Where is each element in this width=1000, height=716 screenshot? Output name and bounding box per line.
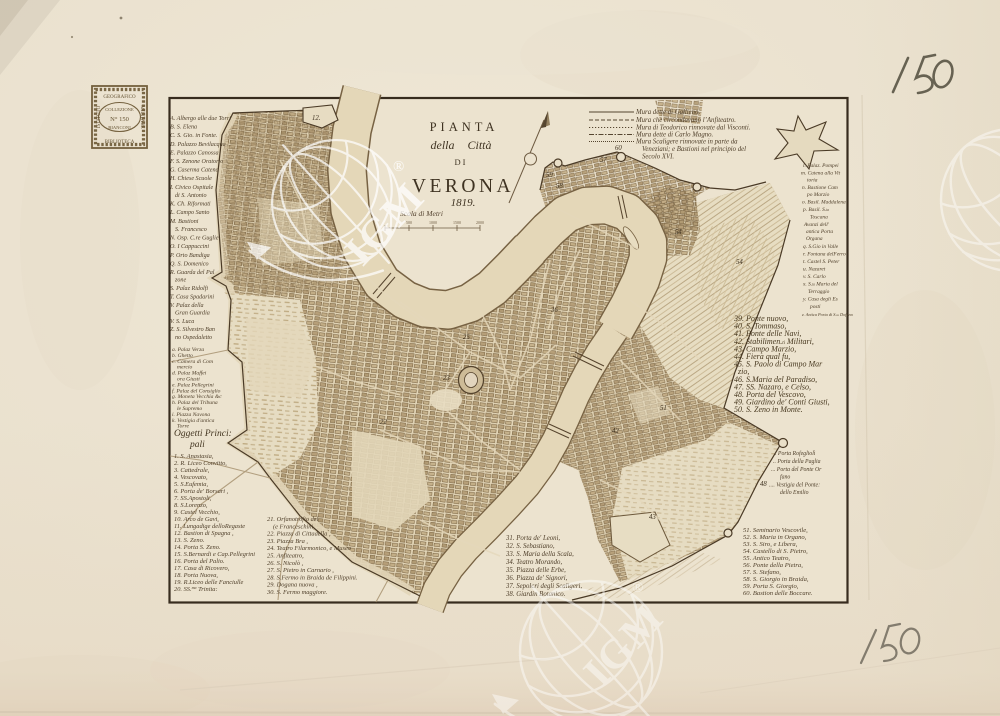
- svg-text:7. SS.Apostoli,: 7. SS.Apostoli,: [174, 495, 212, 502]
- svg-text:20. SS.ma Trinita:: 20. SS.ma Trinita:: [174, 585, 218, 593]
- svg-text:q. S.Gio in Valle: q. S.Gio in Valle: [803, 244, 839, 250]
- svg-text:25. Anfiteatro,: 25. Anfiteatro,: [267, 553, 304, 560]
- svg-text:Oggetti Princi:: Oggetti Princi:: [174, 429, 232, 439]
- svg-text:I. Civico Ospitale: I. Civico Ospitale: [169, 185, 213, 191]
- svg-text:2. R. Liceo Convitto,: 2. R. Liceo Convitto,: [174, 460, 227, 467]
- svg-text:51: 51: [660, 405, 667, 412]
- svg-text:A. Albergo alle due Torri: A. Albergo alle due Torri: [169, 116, 231, 122]
- svg-text:13. S. Zeno.: 13. S. Zeno.: [174, 537, 205, 544]
- svg-text:u. Nazaret: u. Nazaret: [803, 267, 826, 273]
- svg-text:25: 25: [463, 334, 470, 341]
- svg-text:4. Vescovato,: 4. Vescovato,: [174, 474, 208, 481]
- svg-text:zone: zone: [174, 278, 186, 284]
- svg-text:30. S. Fermo maggiore.: 30. S. Fermo maggiore.: [266, 589, 328, 596]
- svg-text:E. Palazzo Canossa: E. Palazzo Canossa: [169, 150, 219, 156]
- svg-text:. Porta Rofegliolì: . Porta Rofegliolì: [775, 450, 816, 457]
- svg-text:22. Piazza di Cittadella ,: 22. Piazza di Cittadella ,: [267, 531, 331, 538]
- svg-text:Q. S. Domenico: Q. S. Domenico: [170, 261, 209, 267]
- svg-text:N. Osp. C.re Guglie: N. Osp. C.re Guglie: [169, 236, 219, 242]
- svg-text:34. Teatro Morando,: 34. Teatro Morando,: [505, 559, 562, 566]
- svg-text:29. Dogana nuova ,: 29. Dogana nuova ,: [267, 582, 318, 589]
- svg-text:53. S. Siro, e Libera,: 53. S. Siro, e Libera,: [743, 541, 798, 548]
- svg-text:Toscana: Toscana: [810, 215, 828, 221]
- svg-text:posti: posti: [809, 304, 821, 310]
- svg-text:59. Porta S. Giorgio,: 59. Porta S. Giorgio,: [743, 583, 799, 590]
- svg-text:27. S. Pietro in Carnario ,: 27. S. Pietro in Carnario ,: [267, 567, 334, 574]
- svg-text:O. I Cappuccini: O. I Cappuccini: [170, 244, 209, 250]
- svg-text:Veneziani; e Bastioni nel prin: Veneziani; e Bastioni nel principio del: [642, 146, 746, 153]
- svg-text:Mura di Teodorico rinnovate da: Mura di Teodorico rinnovate dal Visconti…: [635, 125, 751, 132]
- svg-text:1500: 1500: [453, 220, 461, 225]
- svg-text:60. Bastion delle Boccare.: 60. Bastion delle Boccare.: [743, 590, 813, 597]
- svg-text:l. Palaz. Pompei: l. Palaz. Pompei: [803, 163, 839, 169]
- svg-text:L. Campo Santo: L. Campo Santo: [169, 210, 209, 216]
- svg-text:8. S.Lorenzo,: 8. S.Lorenzo,: [174, 502, 208, 509]
- svg-text:r. Fontana delFerro: r. Fontana delFerro: [803, 252, 846, 258]
- svg-text:V. S. Luca: V. S. Luca: [170, 319, 194, 325]
- svg-text:23. Piazza Bra ,: 23. Piazza Bra ,: [267, 538, 308, 545]
- svg-text:D. Palazzo Bevilacqua: D. Palazzo Bevilacqua: [169, 142, 226, 148]
- svg-text:COLLEZIONE: COLLEZIONE: [105, 107, 134, 112]
- svg-text:Avanzi dell': Avanzi dell': [803, 222, 830, 228]
- svg-text:t. Castel S. Peter: t. Castel S. Peter: [803, 259, 840, 265]
- svg-text:z. Antica Porta di S.ta Dofano: z. Antica Porta di S.ta Dofano: [801, 312, 854, 317]
- svg-text:S. Palaz Ridolfi: S. Palaz Ridolfi: [170, 285, 208, 292]
- svg-text:54. Castello di S. Pietro,: 54. Castello di S. Pietro,: [743, 548, 808, 555]
- svg-text:18. Porta Nuova,: 18. Porta Nuova,: [174, 572, 218, 579]
- svg-text:57. S. Stefano,: 57. S. Stefano,: [743, 569, 781, 576]
- svg-text:M. Bastioni: M. Bastioni: [169, 219, 199, 225]
- svg-text:pali: pali: [189, 440, 205, 450]
- svg-text:o. Basil. Maddalena: o. Basil. Maddalena: [802, 200, 846, 206]
- svg-text:51. Seminario Vescovile,: 51. Seminario Vescovile,: [743, 527, 808, 534]
- svg-text:2000: 2000: [476, 220, 484, 225]
- svg-text:R. Guarda del Pal: R. Guarda del Pal: [169, 270, 215, 276]
- svg-text:y. Casa degli Es: y. Casa degli Es: [802, 297, 838, 303]
- svg-text:33. S. Maria della Scala,: 33. S. Maria della Scala,: [505, 551, 574, 558]
- svg-text:43: 43: [649, 514, 656, 521]
- svg-text:... Porta del Ponte Or: ... Porta del Ponte Or: [771, 467, 822, 473]
- svg-text:54: 54: [736, 259, 743, 266]
- svg-text:m. Catena alla Vit: m. Catena alla Vit: [801, 171, 841, 177]
- svg-text:H. Chiese Scuole: H. Chiese Scuole: [169, 176, 212, 182]
- svg-text:52. S. Maria in Organo,: 52. S. Maria in Organo,: [743, 534, 807, 541]
- svg-text:16. Porta del Palio.: 16. Porta del Palio.: [174, 558, 225, 565]
- svg-text:58: 58: [556, 183, 563, 190]
- svg-text:28. S.Fermo in Braida de Filip: 28. S.Fermo in Braida de Filippini.: [267, 574, 358, 581]
- svg-text:v. S. Carlo: v. S. Carlo: [803, 274, 826, 280]
- svg-text:5. S.Eufemia,: 5. S.Eufemia,: [174, 481, 208, 488]
- svg-text:.... Vestigia del Ponte:: .... Vestigia del Ponte:: [769, 483, 820, 489]
- svg-text:24. Teatro Filarmonico, e Muse: 24. Teatro Filarmonico, e Museo: [267, 545, 351, 552]
- svg-text:59: 59: [546, 172, 553, 179]
- svg-text:V. Palaz della: V. Palaz della: [170, 303, 204, 309]
- svg-text:Gran Guardia: Gran Guardia: [175, 311, 210, 317]
- svg-text:50. S. Zeno in Monte.: 50. S. Zeno in Monte.: [734, 405, 803, 414]
- svg-text:12. Bastion di Spagna ,: 12. Bastion di Spagna ,: [174, 530, 234, 537]
- svg-text:48: 48: [760, 481, 767, 488]
- svg-text:Mura Scaligere rinnovate in pa: Mura Scaligere rinnovate in parte da: [635, 139, 738, 146]
- svg-text:C. S. Gio. in Fonte.: C. S. Gio. in Fonte.: [170, 133, 217, 139]
- svg-text:P. Orto Bandiga: P. Orto Bandiga: [169, 253, 210, 259]
- svg-text:di S. Antonio: di S. Antonio: [175, 193, 207, 199]
- svg-text:no Ospedaletto: no Ospedaletto: [175, 335, 212, 341]
- svg-text:G. Caserma Catena: G. Caserma Catena: [170, 168, 219, 174]
- svg-text:54: 54: [675, 229, 682, 236]
- svg-text:22: 22: [380, 419, 387, 426]
- svg-text:n. Bastione Cam: n. Bastione Cam: [802, 185, 838, 191]
- svg-text:antica Porta: antica Porta: [806, 229, 833, 235]
- svg-text:19. R.Liceo delle Fanciulle: 19. R.Liceo delle Fanciulle: [174, 579, 244, 586]
- svg-text:BIANCONI: BIANCONI: [108, 125, 131, 130]
- svg-text:56. Ponte della Pietra,: 56. Ponte della Pietra,: [743, 562, 803, 569]
- svg-text:57: 57: [600, 157, 607, 164]
- svg-text:Secolo XVI.: Secolo XVI.: [642, 154, 674, 161]
- svg-text:Terraggio: Terraggio: [808, 289, 830, 295]
- svg-text:15. S.Bernardi e Cap.Pellegrin: 15. S.Bernardi e Cap.Pellegrini: [174, 551, 255, 558]
- svg-text:12.: 12.: [312, 115, 321, 122]
- svg-text:GEOGRAFICO: GEOGRAFICO: [103, 95, 136, 100]
- svg-text:della Città: della Città: [431, 138, 492, 152]
- svg-text:Mura che circondavano l’Anfite: Mura che circondavano l’Anfiteatro.: [635, 117, 736, 124]
- svg-text:10. Arco de Gavi,: 10. Arco de Gavi,: [174, 516, 219, 523]
- svg-text:55. Antico Teatro,: 55. Antico Teatro,: [743, 555, 790, 562]
- svg-text:1819.: 1819.: [451, 197, 476, 209]
- svg-text:.. Porta della Paglia: .. Porta della Paglia: [773, 459, 821, 465]
- svg-text:x. S.ta Maria del: x. S.ta Maria del: [802, 282, 838, 288]
- svg-text:po Marzio: po Marzio: [806, 192, 830, 198]
- svg-text:23: 23: [443, 375, 450, 382]
- svg-text:Organa: Organa: [806, 236, 823, 242]
- svg-text:F. S. Zenone Oratorio: F. S. Zenone Oratorio: [169, 159, 223, 165]
- svg-text:14. Porta S. Zeno.: 14. Porta S. Zeno.: [174, 544, 221, 551]
- svg-text:T. Casa Spadarini: T. Casa Spadarini: [170, 294, 214, 300]
- svg-text:fano: fano: [780, 474, 790, 481]
- svg-text:Mura dette di Carlo Magno.: Mura dette di Carlo Magno.: [635, 132, 714, 139]
- svg-text:26. S. Nicolò ,: 26. S. Nicolò ,: [267, 560, 304, 567]
- svg-text:58. S. Giorgio in Braida,: 58. S. Giorgio in Braida,: [743, 576, 809, 583]
- svg-text:(e Franceschini,: (e Franceschini,: [273, 523, 315, 530]
- svg-text:1. S. Anastasia,: 1. S. Anastasia,: [174, 453, 214, 460]
- svg-text:36: 36: [550, 307, 558, 314]
- svg-text:42: 42: [612, 428, 619, 435]
- svg-text:11. Lungadige delloRegaste: 11. Lungadige delloRegaste: [174, 523, 245, 530]
- svg-text:ISTITUTO: ISTITUTO: [97, 105, 102, 128]
- svg-text:p. Basil. S.ta: p. Basil. S.ta: [802, 207, 829, 213]
- svg-text:N° 150: N° 150: [110, 116, 129, 123]
- svg-text:Z. S. Silvestro Ban: Z. S. Silvestro Ban: [170, 327, 215, 333]
- svg-text:1000: 1000: [429, 220, 437, 225]
- svg-text:toria: toria: [807, 178, 818, 184]
- svg-text:36. Piazza de' Signori,: 36. Piazza de' Signori,: [505, 575, 568, 582]
- svg-text:S. Francesco: S. Francesco: [175, 227, 207, 233]
- svg-text:PIANTA: PIANTA: [430, 120, 499, 134]
- svg-text:MILITARE: MILITARE: [139, 105, 144, 128]
- svg-text:31. Porta de' Leoni,: 31. Porta de' Leoni,: [505, 535, 560, 542]
- svg-text:6. Porta de' Borsari ,: 6. Porta de' Borsari ,: [174, 488, 229, 495]
- svg-text:9. Castel Vecchio,: 9. Castel Vecchio,: [174, 509, 220, 516]
- svg-text:60: 60: [615, 145, 622, 152]
- svg-text:VERONA: VERONA: [412, 176, 514, 197]
- svg-text:DI: DI: [455, 157, 468, 167]
- svg-text:21. Orfanotrofio del: 21. Orfanotrofio del: [267, 516, 319, 523]
- svg-text:3. Cattedrale,: 3. Cattedrale,: [173, 467, 210, 474]
- svg-text:B. S. Elena: B. S. Elena: [170, 125, 197, 131]
- svg-text:dello Emilio: dello Emilio: [780, 490, 809, 496]
- svg-text:35. Piazza delle Erbe,: 35. Piazza delle Erbe,: [505, 567, 566, 574]
- svg-text:Mura dette di Gallieno.: Mura dette di Gallieno.: [635, 109, 700, 116]
- svg-text:K. Ch. Riformati: K. Ch. Riformati: [169, 201, 211, 208]
- svg-text:BIBLIOTECA: BIBLIOTECA: [105, 140, 135, 145]
- svg-text:32. S. Sebastiano,: 32. S. Sebastiano,: [505, 543, 555, 550]
- svg-text:17. Casa di Ricovero,: 17. Casa di Ricovero,: [174, 565, 230, 572]
